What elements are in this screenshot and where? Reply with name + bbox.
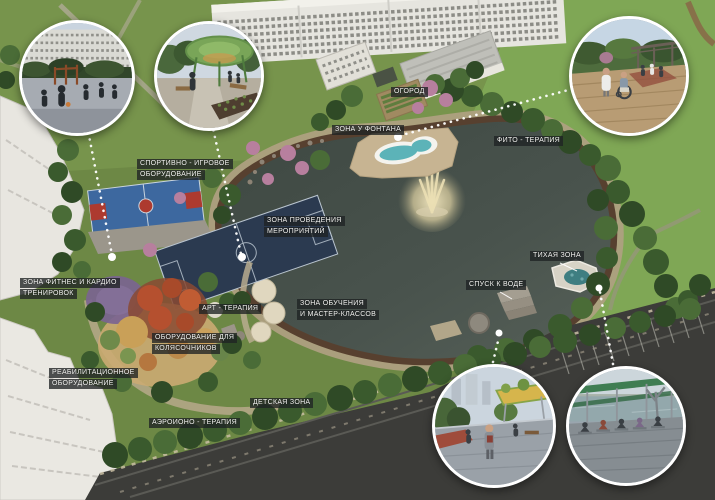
zone-label-fountain-zone: ЗОНА У ФОНТАНА <box>332 125 404 136</box>
zone-label-text: АЭРОИОНО - ТЕРАПИЯ <box>149 418 240 428</box>
zone-label-text: И МАСТЕР-КЛАССОВ <box>297 310 379 320</box>
zone-label-text: ОБОРУДОВАНИЕ ДЛЯ <box>152 333 237 343</box>
zone-label-text: ЗОНА ФИТНЕС И КАРДИО <box>20 278 120 288</box>
zone-label-text: ДЕТСКАЯ ЗОНА <box>250 398 313 408</box>
sports-court-scene <box>22 23 132 133</box>
zone-label-text: СПОРТИВНО - ИГРОВОЕ <box>137 159 233 169</box>
yoga-deck-scene <box>569 369 683 483</box>
inset-rehab-garden-photo <box>569 16 689 136</box>
zone-label-text: ОБОРУДОВАНИЕ <box>49 379 117 389</box>
zone-label-phyto-therapy: ФИТО - ТЕРАПИЯ <box>494 136 563 147</box>
pavilion-scene <box>157 24 261 128</box>
zone-label-text: ФИТО - ТЕРАПИЯ <box>494 136 563 146</box>
zone-label-text: КОЛЯСОЧНИКОВ <box>152 344 220 354</box>
zone-label-text: СПУСК К ВОДЕ <box>466 280 526 290</box>
zone-label-text: АРТ - ТЕРАПИЯ <box>199 304 261 314</box>
zone-label-text: МЕРОПРИЯТИЙ <box>264 227 328 237</box>
zone-label-art-therapy: АРТ - ТЕРАПИЯ <box>199 304 261 315</box>
zone-label-text: ТРЕНИРОВОК <box>20 289 77 299</box>
zone-label-text: ЗОНА У ФОНТАНА <box>332 125 404 135</box>
zone-label-quiet-zone: ТИХАЯ ЗОНА <box>530 251 584 262</box>
zone-label-water-access: СПУСК К ВОДЕ <box>466 280 526 291</box>
inset-yoga-deck-photo <box>566 366 686 486</box>
zone-label-garden: ОГОРОД <box>391 87 428 98</box>
rehab-garden-scene <box>572 19 686 133</box>
zone-label-text: ОГОРОД <box>391 87 428 97</box>
zone-label-education: ЗОНА ОБУЧЕНИЯ И МАСТЕР-КЛАССОВ <box>297 299 379 321</box>
zone-label-wheelchair-equipment: ОБОРУДОВАНИЕ ДЛЯ КОЛЯСОЧНИКОВ <box>152 333 237 355</box>
inset-promenade-photo <box>432 364 556 488</box>
masterplan-canvas: СПОРТИВНО - ИГРОВОЕ ОБОРУДОВАНИЕ ОГОРОД … <box>0 0 715 500</box>
zone-label-children-zone: ДЕТСКАЯ ЗОНА <box>250 398 313 409</box>
zone-label-events: ЗОНА ПРОВЕДЕНИЯ МЕРОПРИЯТИЙ <box>264 216 345 238</box>
zone-label-aeroion-therapy: АЭРОИОНО - ТЕРАПИЯ <box>149 418 240 429</box>
inset-pavilion-photo <box>154 21 264 131</box>
zone-label-fitness-cardio: ЗОНА ФИТНЕС И КАРДИО ТРЕНИРОВОК <box>20 278 120 300</box>
zone-label-rehab-equipment: РЕАБИЛИТАЦИОННОЕ ОБОРУДОВАНИЕ <box>49 368 138 390</box>
zone-label-text: ТИХАЯ ЗОНА <box>530 251 584 261</box>
zone-label-text: ЗОНА ОБУЧЕНИЯ <box>297 299 367 309</box>
inset-sports-court-photo <box>19 20 135 136</box>
zone-label-text: РЕАБИЛИТАЦИОННОЕ <box>49 368 138 378</box>
zone-label-sport-equipment: СПОРТИВНО - ИГРОВОЕ ОБОРУДОВАНИЕ <box>137 159 233 181</box>
zone-label-text: ЗОНА ПРОВЕДЕНИЯ <box>264 216 345 226</box>
zone-label-text: ОБОРУДОВАНИЕ <box>137 170 205 180</box>
promenade-scene <box>435 367 553 485</box>
